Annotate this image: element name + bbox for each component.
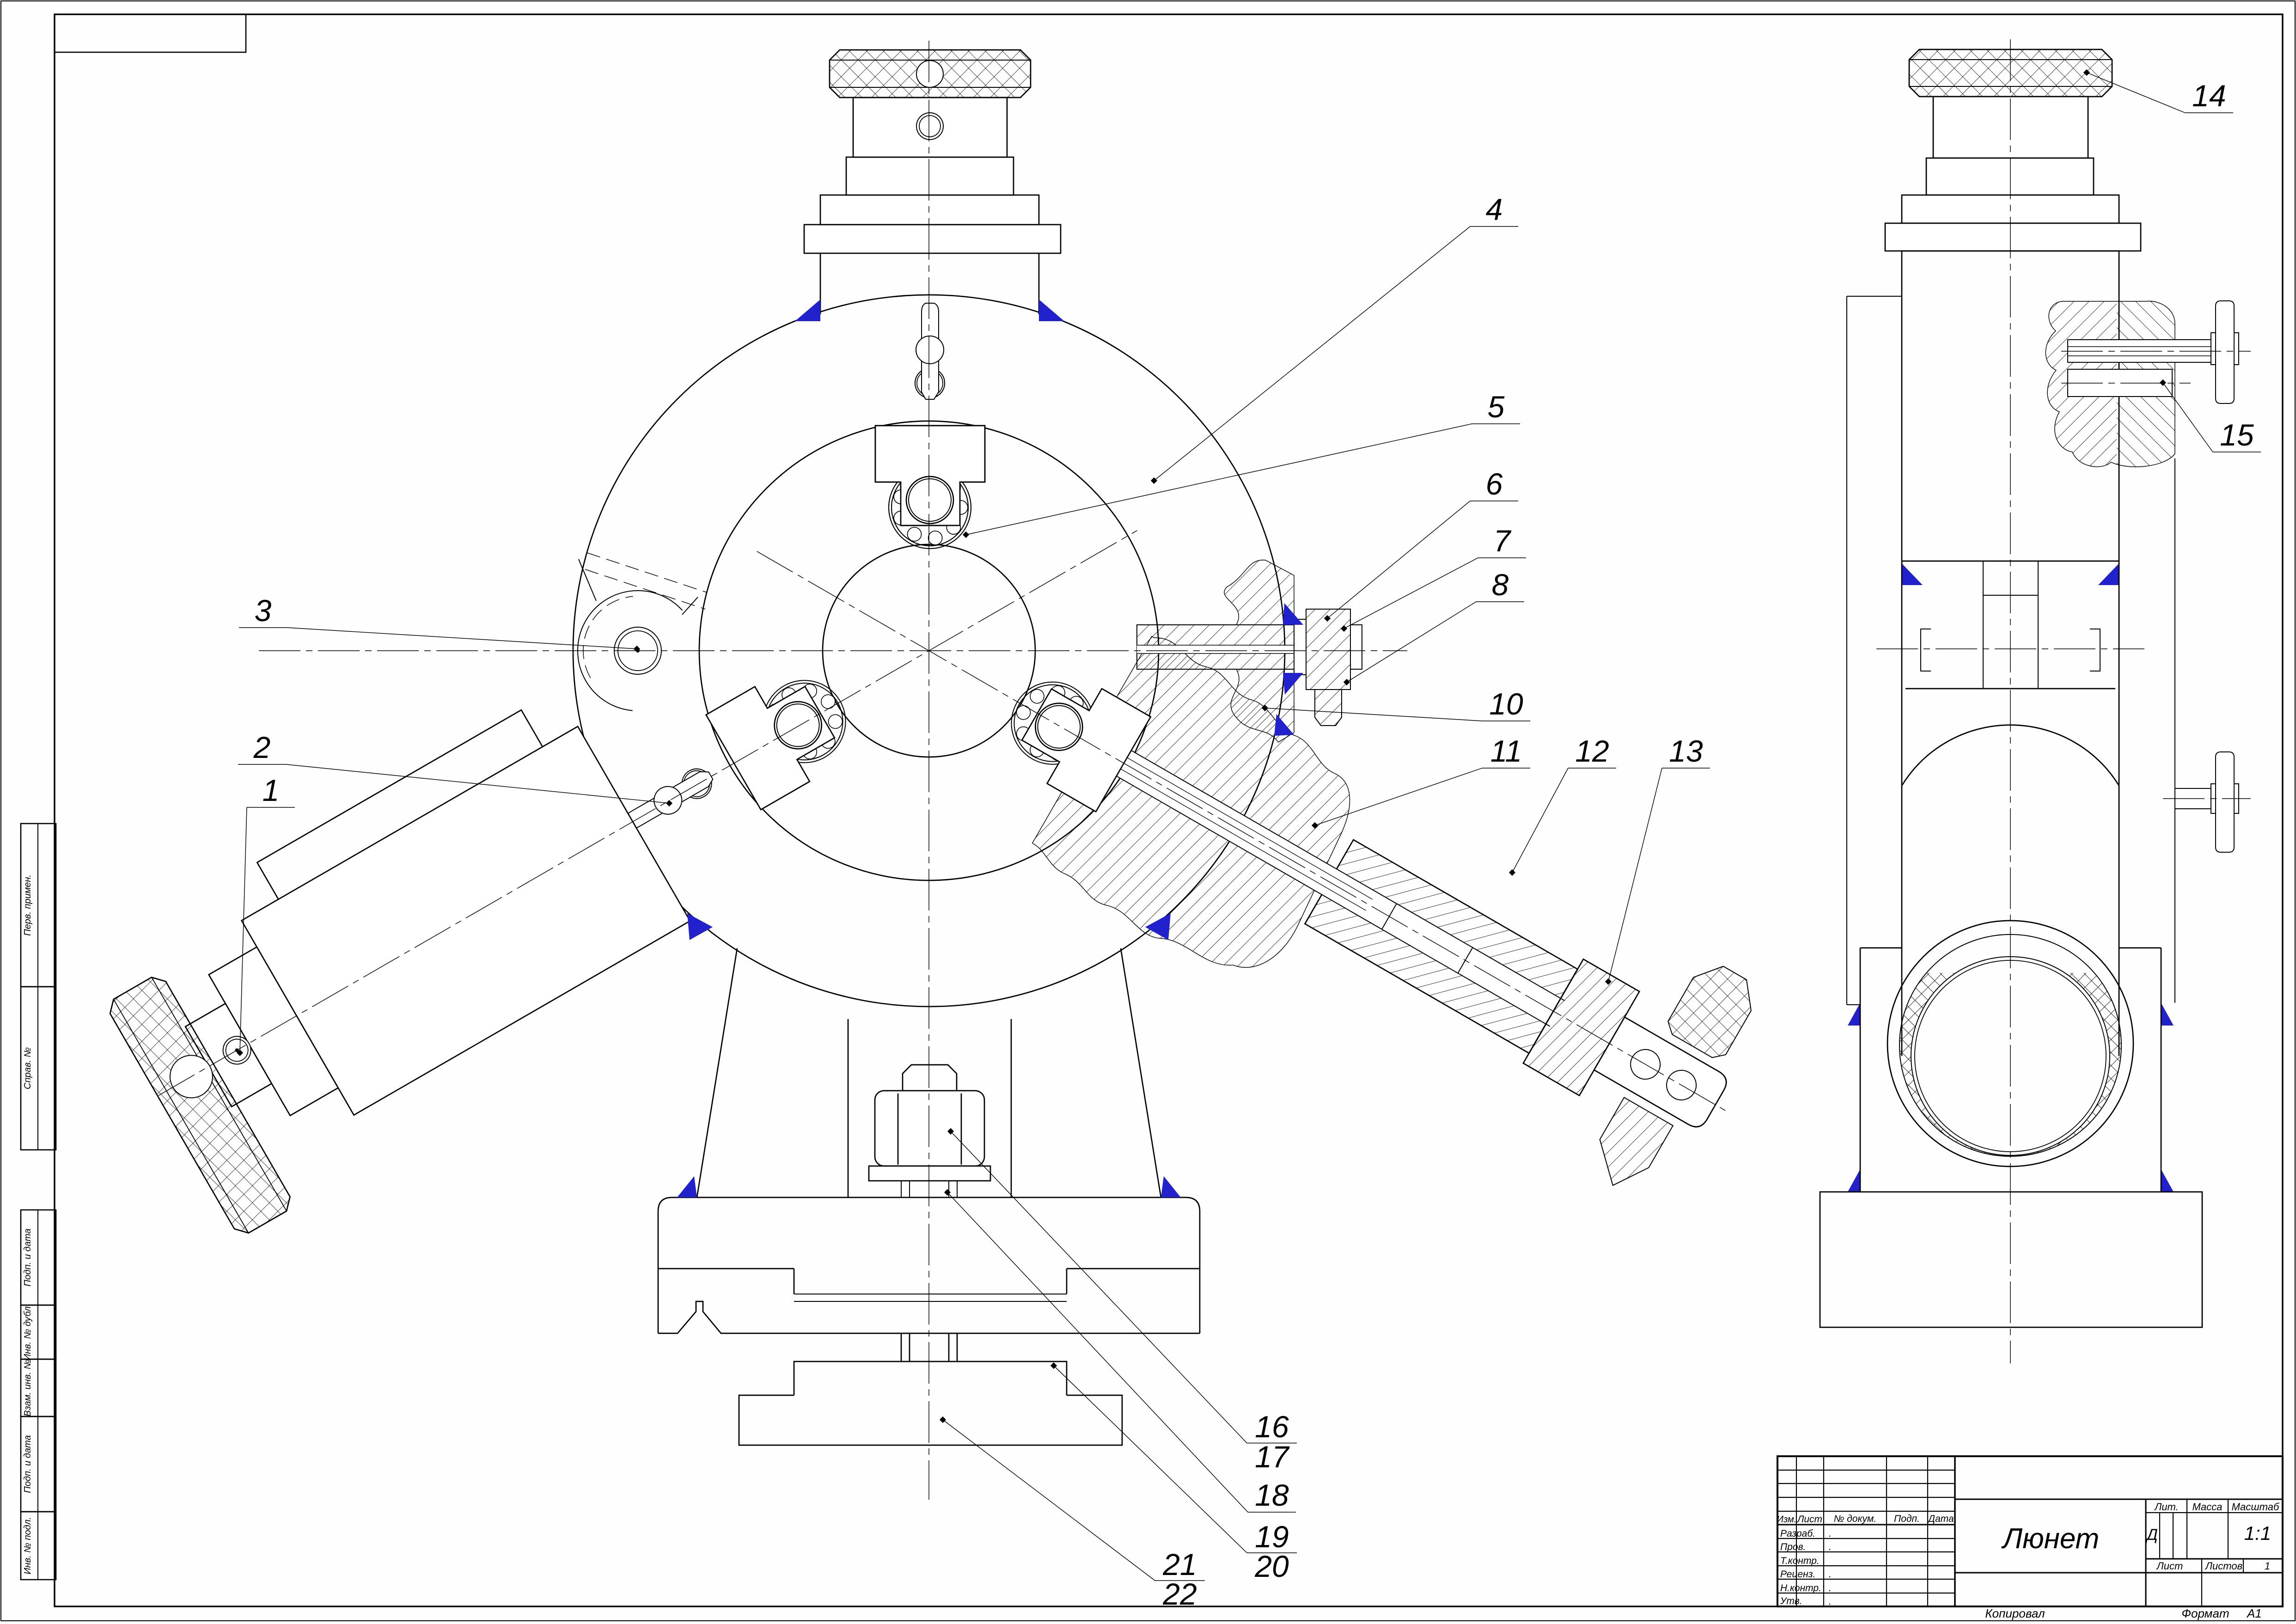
svg-text:7: 7 bbox=[1494, 524, 1512, 558]
svg-text:2: 2 bbox=[253, 730, 271, 764]
svg-text:8: 8 bbox=[1492, 568, 1509, 602]
svg-text:12: 12 bbox=[1575, 734, 1609, 768]
svg-text:Формат: Формат bbox=[2181, 1606, 2229, 1620]
svg-text:Лист: Лист bbox=[1796, 1514, 1822, 1525]
svg-text:.: . bbox=[1829, 1541, 1832, 1552]
svg-text:16: 16 bbox=[1255, 1410, 1289, 1444]
svg-text:18: 18 bbox=[1255, 1478, 1289, 1512]
svg-text:21: 21 bbox=[1162, 1547, 1197, 1581]
svg-text:Лист: Лист bbox=[2156, 1560, 2183, 1572]
svg-text:Изм.: Изм. bbox=[1777, 1514, 1797, 1525]
svg-text:Дата: Дата bbox=[1927, 1514, 1954, 1524]
svg-text:Пров.: Пров. bbox=[1780, 1542, 1806, 1552]
svg-text:Н.контр.: Н.контр. bbox=[1780, 1583, 1821, 1593]
svg-text:19: 19 bbox=[1255, 1520, 1288, 1554]
svg-text:11: 11 bbox=[1490, 734, 1522, 768]
svg-text:Подп.: Подп. bbox=[1894, 1514, 1920, 1524]
svg-text:1: 1 bbox=[263, 773, 280, 807]
svg-text:17: 17 bbox=[1255, 1440, 1290, 1474]
svg-text:Лит.: Лит. bbox=[2154, 1501, 2179, 1513]
svg-text:Реценз.: Реценз. bbox=[1780, 1569, 1815, 1580]
svg-text:Масса: Масса bbox=[2192, 1501, 2222, 1513]
svg-text:.: . bbox=[1829, 1595, 1832, 1607]
svg-text:13: 13 bbox=[1669, 734, 1703, 768]
svg-text:.: . bbox=[1829, 1527, 1832, 1539]
svg-text:Подп. и дата: Подп. и дата bbox=[23, 1228, 33, 1286]
svg-text:Инв. № дубл.: Инв. № дубл. bbox=[23, 1304, 33, 1361]
svg-text:Инв. № подл.: Инв. № подл. bbox=[23, 1517, 33, 1574]
svg-text:Разраб.: Разраб. bbox=[1780, 1528, 1815, 1539]
svg-text:15: 15 bbox=[2220, 418, 2254, 452]
svg-text:Масштаб: Масштаб bbox=[2232, 1501, 2280, 1513]
svg-text:14: 14 bbox=[2192, 79, 2226, 113]
svg-text:Утв.: Утв. bbox=[1780, 1596, 1802, 1606]
svg-text:.: . bbox=[1829, 1568, 1832, 1580]
svg-text:.: . bbox=[1829, 1582, 1832, 1593]
svg-text:Люнет: Люнет bbox=[2001, 1523, 2100, 1555]
svg-text:10: 10 bbox=[1489, 687, 1523, 721]
svg-text:5: 5 bbox=[1488, 390, 1505, 424]
svg-text:6: 6 bbox=[1486, 467, 1503, 501]
svg-text:22: 22 bbox=[1162, 1577, 1197, 1611]
svg-text:Копировал: Копировал bbox=[1985, 1606, 2045, 1620]
svg-text:№ докум.: № докум. bbox=[1834, 1514, 1877, 1524]
svg-text:Листов: Листов bbox=[2204, 1560, 2242, 1572]
svg-text:1:1: 1:1 bbox=[2244, 1522, 2271, 1544]
svg-text:Подп. и дата: Подп. и дата bbox=[23, 1435, 33, 1493]
svg-text:20: 20 bbox=[1254, 1549, 1289, 1583]
svg-text:Взам. инв. №: Взам. инв. № bbox=[23, 1359, 33, 1416]
svg-text:Перв. примен.: Перв. примен. bbox=[23, 874, 33, 936]
svg-text:Д: Д bbox=[2145, 1526, 2158, 1544]
svg-text:Справ. №: Справ. № bbox=[23, 1047, 33, 1089]
svg-text:3: 3 bbox=[255, 593, 272, 628]
svg-text:1: 1 bbox=[2265, 1560, 2270, 1572]
svg-text:4: 4 bbox=[1486, 192, 1503, 226]
svg-text:А1: А1 bbox=[2246, 1606, 2262, 1620]
svg-text:Т.контр.: Т.контр. bbox=[1780, 1556, 1820, 1566]
